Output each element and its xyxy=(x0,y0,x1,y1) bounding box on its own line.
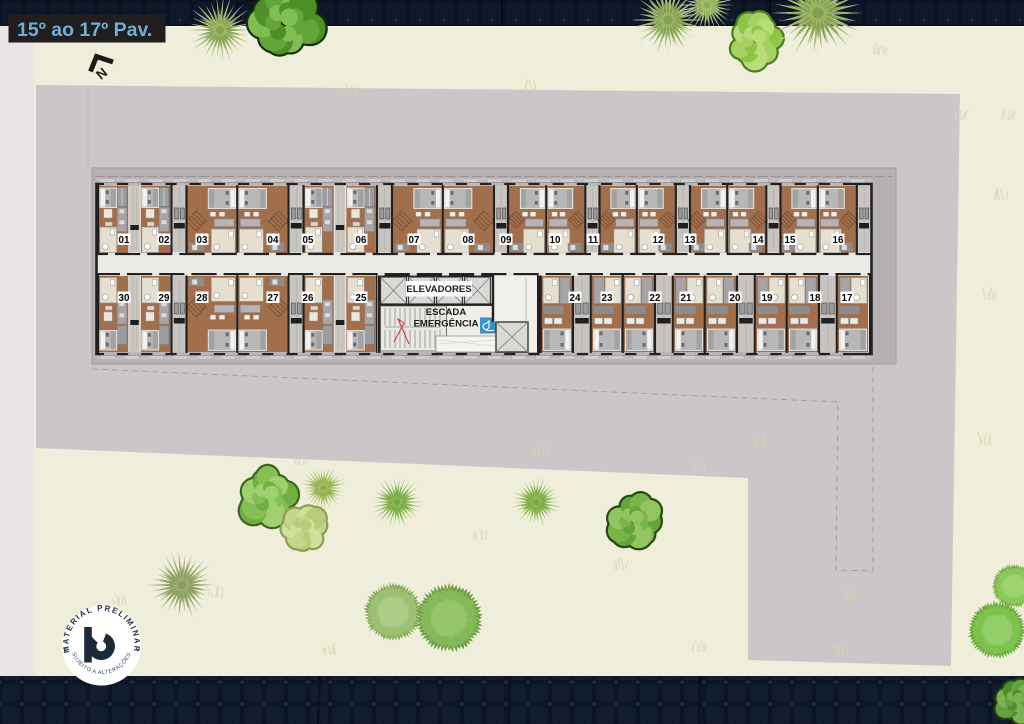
svg-text:03: 03 xyxy=(197,235,208,246)
svg-text:29: 29 xyxy=(159,293,170,304)
svg-text:13: 13 xyxy=(685,235,696,246)
svg-text:15: 15 xyxy=(785,235,796,246)
svg-text:ESCADA: ESCADA xyxy=(426,307,467,318)
svg-text:26: 26 xyxy=(303,293,314,304)
svg-text:10: 10 xyxy=(550,235,561,246)
svg-text:08: 08 xyxy=(463,235,474,246)
svg-text:25: 25 xyxy=(356,293,367,304)
svg-text:24: 24 xyxy=(570,293,581,304)
svg-text:ELEVADORES: ELEVADORES xyxy=(406,284,472,295)
svg-text:14: 14 xyxy=(753,235,764,246)
svg-text:19: 19 xyxy=(762,293,773,304)
svg-text:11: 11 xyxy=(588,235,599,246)
svg-text:21: 21 xyxy=(681,293,692,304)
svg-text:22: 22 xyxy=(650,293,661,304)
svg-text:09: 09 xyxy=(501,235,512,246)
svg-text:05: 05 xyxy=(303,235,314,246)
svg-text:17: 17 xyxy=(842,293,853,304)
svg-text:15º ao 17º Pav.: 15º ao 17º Pav. xyxy=(17,19,152,41)
svg-text:20: 20 xyxy=(730,293,741,304)
svg-text:18: 18 xyxy=(810,293,821,304)
svg-text:07: 07 xyxy=(409,235,420,246)
svg-text:04: 04 xyxy=(268,235,279,246)
svg-text:27: 27 xyxy=(268,293,279,304)
svg-text:EMERGÊNCIA: EMERGÊNCIA xyxy=(413,318,478,330)
svg-text:01: 01 xyxy=(119,235,130,246)
svg-text:23: 23 xyxy=(602,293,613,304)
svg-text:16: 16 xyxy=(833,235,844,246)
svg-text:02: 02 xyxy=(159,235,170,246)
svg-text:06: 06 xyxy=(356,235,367,246)
svg-text:30: 30 xyxy=(119,293,130,304)
svg-text:28: 28 xyxy=(197,293,208,304)
svg-text:12: 12 xyxy=(653,235,664,246)
